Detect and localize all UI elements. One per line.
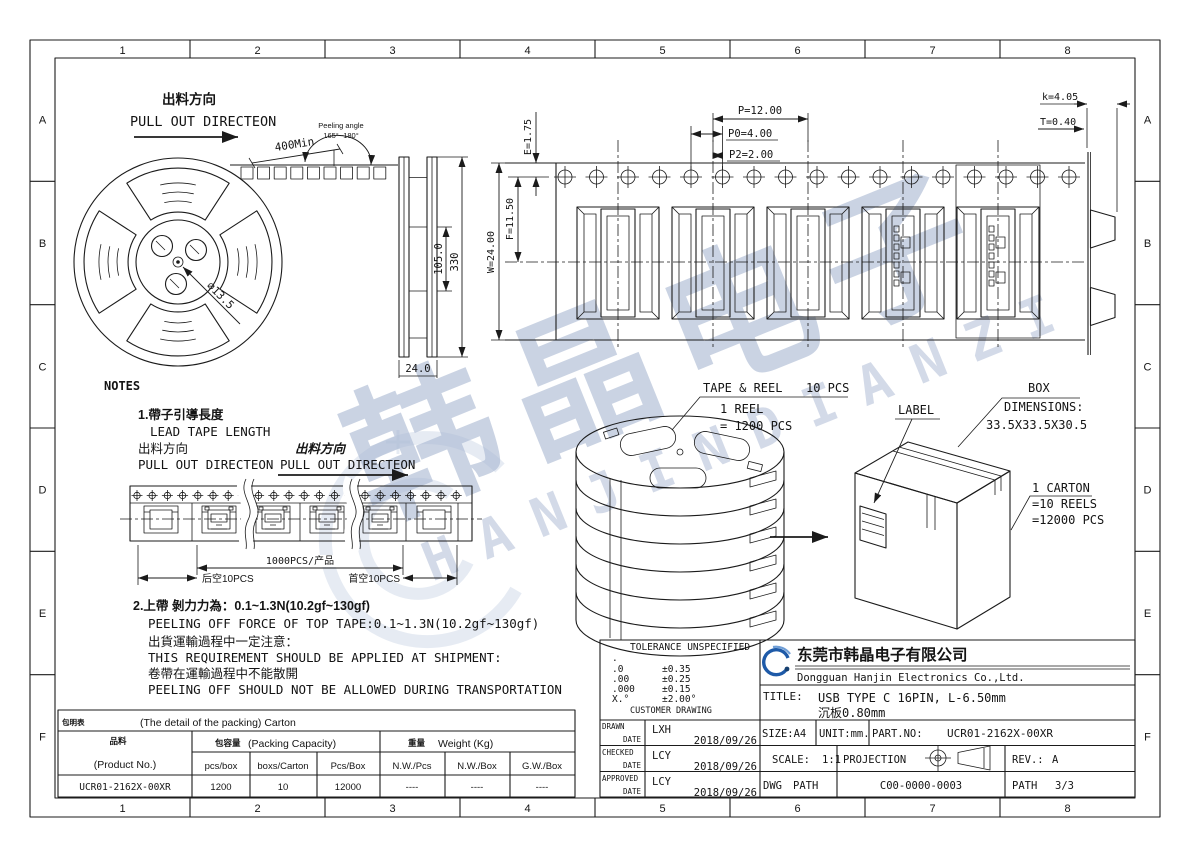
- sheet-value: 3/3: [1055, 780, 1074, 792]
- grid-label: D: [39, 485, 47, 497]
- tape-pocket-square: [374, 167, 386, 179]
- grid-label: 2: [254, 803, 260, 815]
- tape-pocket-square: [357, 167, 369, 179]
- sprocket-hole: [177, 490, 188, 501]
- hub-hole-dia: ∅13.5: [204, 279, 237, 312]
- reel-side-view: 105.0 330 24.0: [399, 157, 468, 378]
- drawn-by: LXH: [652, 724, 671, 736]
- col-nw-box: N.W./Box: [457, 761, 497, 772]
- projection-symbol-icon: [925, 745, 990, 771]
- note1-dir2-en: PULL OUT DIRECTEON: [280, 457, 415, 472]
- dim-P0: P0=4.00: [728, 128, 772, 140]
- dwg-path-label: PATH: [793, 780, 818, 792]
- tape-pocket-square: [307, 167, 319, 179]
- grid-label: 5: [659, 45, 665, 57]
- dwg-number: C00-0000-0003: [880, 780, 962, 792]
- strip-total: 1000PCS/产品: [266, 554, 334, 567]
- strip-connector: [202, 506, 236, 533]
- size-field: SIZE:A4: [762, 728, 806, 740]
- row-part-no: UCR01-2162X-00XR: [79, 782, 171, 793]
- tol-dot: .: [612, 653, 618, 664]
- part-no-value: UCR01-2162X-00XR: [947, 727, 1053, 740]
- title-label: TITLE:: [763, 690, 803, 703]
- sprocket-hole: [901, 166, 923, 188]
- title-line2: 沉板0.80mm: [818, 706, 885, 720]
- sprocket-hole: [420, 490, 431, 501]
- reel-stack: TAPE & REEL 10 PCS 1 REEL = 1200 PCS: [576, 381, 849, 656]
- sprocket-hole: [806, 166, 828, 188]
- sprocket-hole: [743, 166, 765, 188]
- approved-label: APPROVED: [602, 774, 639, 783]
- sprocket-hole: [775, 166, 797, 188]
- tape-pocket-square: [291, 167, 303, 179]
- reel-inner-width: 105.0: [433, 243, 445, 275]
- note1-dir-en: PULL OUT DIRECTEON: [138, 457, 273, 472]
- note1-cn: 1.帶子引導長度: [138, 407, 224, 422]
- grid-label: 4: [524, 45, 530, 57]
- sprocket-hole: [838, 166, 860, 188]
- box-label: BOX: [1028, 381, 1050, 395]
- sprocket-hole: [208, 490, 219, 501]
- reel-tape-width: 24.0: [405, 363, 430, 375]
- tolerance-footer: CUSTOMER DRAWING: [630, 706, 712, 716]
- sprocket-hole: [680, 166, 702, 188]
- box-dims-value: 33.5X33.5X30.5: [986, 418, 1087, 432]
- sprocket-hole: [147, 490, 158, 501]
- sprocket-hole: [314, 490, 325, 501]
- reel-count: 1 REEL: [720, 402, 763, 416]
- sprocket-hole: [223, 490, 234, 501]
- grid-label: F: [1144, 731, 1151, 743]
- title-block: TOLERANCE UNSPECIFIED . .0 ±0.35 .00 ±0.…: [600, 640, 1135, 799]
- tol-3-r: ±2.00°: [662, 694, 696, 705]
- checked-by: LCY: [652, 750, 672, 762]
- sprocket-hole: [284, 490, 295, 501]
- drawn-date-label: DATE: [623, 735, 642, 744]
- dim-F: F=11.50: [505, 198, 516, 240]
- dim-k: k=4.05: [1042, 92, 1078, 103]
- tape-pocket-square: [341, 167, 353, 179]
- strip-connector: [144, 506, 178, 533]
- note2b-cn: 出貨運輸過程中一定注意：: [148, 634, 298, 649]
- grid-label: E: [1144, 608, 1151, 620]
- tolerance-title: TOLERANCE UNSPECIFIED: [630, 642, 750, 653]
- packing-table: 包明表 (The detail of the packing) Carton 品…: [58, 710, 575, 797]
- drawing-sheet: 韩晶电子 HANJINDIANZI: [0, 0, 1200, 858]
- approved-date-label: DATE: [623, 787, 642, 796]
- product-cn: 品料: [109, 736, 127, 746]
- row-boxs-carton: 10: [278, 782, 289, 793]
- note2-cn: 2.上帶 剝力力為：0.1~1.3N(10.2gf~130gf): [133, 598, 370, 613]
- sprocket-hole: [617, 166, 639, 188]
- checked-label: CHECKED: [602, 748, 634, 757]
- row-gw-box: ----: [536, 782, 549, 793]
- grid-label: A: [39, 115, 47, 127]
- sprocket-hole: [649, 166, 671, 188]
- tape-pocket-square: [241, 167, 253, 179]
- note2c-en: PEELING OFF SHOULD NOT BE ALLOWED DURING…: [148, 682, 562, 697]
- note2b-en: THIS REQUIREMENT SHOULD BE APPLIED AT SH…: [148, 650, 502, 665]
- dwg-label: DWG: [763, 780, 782, 792]
- tape-reel-label: TAPE & REEL: [703, 381, 782, 395]
- grid-label: 1: [119, 45, 125, 57]
- unit-field: UNIT:mm.: [819, 728, 870, 740]
- dim-P2: P2=2.00: [729, 149, 773, 161]
- row-pcs-carton: 12000: [335, 782, 361, 793]
- grid-label: 7: [929, 803, 935, 815]
- grid-label: B: [39, 238, 46, 250]
- tape-reel-qty: 10 PCS: [806, 381, 849, 395]
- grid-label: D: [1144, 485, 1152, 497]
- approved-by: LCY: [652, 776, 672, 788]
- grid-label: 7: [929, 45, 935, 57]
- weight-en: Weight (Kg): [438, 738, 493, 750]
- grid-label: 4: [524, 803, 530, 815]
- sprocket-hole: [192, 490, 203, 501]
- grid-label: 2: [254, 45, 260, 57]
- carrier-tape-view: E=1.75 F=11.50 W=24.00 P=12.00 P0=4.00 P…: [486, 105, 1085, 348]
- sprocket-hole: [299, 490, 310, 501]
- grid-label: A: [1144, 115, 1152, 127]
- rev-value: A: [1052, 754, 1059, 766]
- col-gw-box: G.W./Box: [522, 761, 562, 772]
- reel-front-view: 出料方向 PULL OUT DIRECTEON ∅13.5 400Min Pee…: [74, 91, 398, 366]
- dim-T: T=0.40: [1040, 117, 1076, 128]
- leader-length: 400Min: [274, 135, 315, 154]
- notes-section: NOTES 1.帶子引導長度 LEAD TAPE LENGTH 出料方向 PUL…: [104, 379, 562, 697]
- sprocket-hole: [586, 166, 608, 188]
- tape-pocket-square: [324, 167, 336, 179]
- sheet-label: PATH: [1012, 780, 1037, 792]
- dim-P: P=12.00: [738, 105, 782, 117]
- capacity-cn: 包容量: [215, 738, 241, 748]
- checked-date-label: DATE: [623, 761, 642, 770]
- sprocket-hole: [1058, 166, 1080, 188]
- approved-date: 2018/09/26: [694, 787, 757, 799]
- col-boxs-carton: boxs/Carton: [257, 761, 308, 772]
- row-nw-box: ----: [471, 782, 484, 793]
- part-no-label: PART.NO:: [872, 728, 923, 740]
- box-dims-label: DIMENSIONS:: [1004, 400, 1083, 414]
- label-text: LABEL: [898, 403, 934, 417]
- sprocket-hole: [162, 490, 173, 501]
- rev-label: REV.:: [1012, 754, 1044, 766]
- scale-value: 1:1: [822, 754, 841, 766]
- dim-E: E=1.75: [523, 119, 534, 155]
- sprocket-hole: [132, 490, 143, 501]
- weight-cn: 重量: [408, 738, 426, 748]
- peeling-angle-label: Peeling angle: [318, 121, 363, 130]
- capacity-en: (Packing Capacity): [248, 738, 336, 750]
- sprocket-hole: [712, 166, 734, 188]
- company-name-en: Dongguan Hanjin Electronics Co.,Ltd.: [797, 672, 1025, 684]
- sprocket-hole: [964, 166, 986, 188]
- sprocket-hole: [405, 490, 416, 501]
- carton-reels: =10 REELS: [1032, 497, 1097, 511]
- strip-connector: [256, 506, 290, 533]
- note2c-cn: 卷帶在運輸過程中不能散開: [148, 666, 298, 681]
- pull-out-en: PULL OUT DIRECTEON: [130, 114, 276, 130]
- drawn-date: 2018/09/26: [694, 735, 757, 747]
- note2-en: PEELING OFF FORCE OF TOP TAPE:0.1~1.3N(1…: [148, 616, 539, 631]
- tape-end-view: k=4.05 T=0.40: [1038, 92, 1130, 355]
- note1-dir-cn: 出料方向: [138, 441, 188, 456]
- grid-label: E: [39, 608, 46, 620]
- company-name-cn: 东莞市韩晶电子有限公司: [797, 645, 968, 664]
- sprocket-hole: [268, 490, 279, 501]
- note1-en: LEAD TAPE LENGTH: [150, 424, 270, 439]
- notes-heading: NOTES: [104, 379, 140, 393]
- drawn-label: DRAWN: [602, 722, 625, 731]
- table-tag: 包明表: [61, 717, 85, 727]
- carton-qty: =12000 PCS: [1032, 513, 1104, 527]
- grid-label: 3: [389, 45, 395, 57]
- carton-count: 1 CARTON: [1032, 481, 1090, 495]
- grid-label: F: [39, 731, 46, 743]
- strip-connector: [417, 506, 451, 533]
- row-nw-pcs: ----: [406, 782, 419, 793]
- table-heading: (The detail of the packing) Carton: [140, 717, 296, 729]
- grid-label: 6: [794, 45, 800, 57]
- col-nw-pcs: N.W./Pcs: [392, 761, 431, 772]
- strip-tail: 后空10PCS: [202, 572, 254, 585]
- col-pcs-box: pcs/box: [205, 761, 238, 772]
- tape-pocket-square: [274, 167, 286, 179]
- grid-label: B: [1144, 238, 1151, 250]
- row-pcs-box: 1200: [210, 782, 231, 793]
- checked-date: 2018/09/26: [694, 761, 757, 773]
- strip-head: 首空10PCS: [348, 572, 400, 585]
- grid-label: C: [39, 361, 47, 373]
- grid-label: 1: [119, 803, 125, 815]
- grid-label: 5: [659, 803, 665, 815]
- sprocket-hole: [1027, 166, 1049, 188]
- scale-label: SCALE:: [772, 754, 810, 766]
- sprocket-hole: [554, 166, 576, 188]
- grid-label: C: [1144, 361, 1152, 373]
- pull-out-cn: 出料方向: [162, 91, 216, 107]
- sprocket-hole: [869, 166, 891, 188]
- note1-dir2-cn: 出料方向: [295, 442, 347, 456]
- reel-outer-dia: 330: [449, 253, 461, 272]
- grid-label: 8: [1064, 803, 1070, 815]
- projection-label: PROJECTION: [843, 754, 906, 766]
- reel-qty: = 1200 PCS: [720, 419, 792, 433]
- grid-label: 6: [794, 803, 800, 815]
- dim-W: W=24.00: [486, 231, 497, 273]
- grid-label: 8: [1064, 45, 1070, 57]
- tape-pocket-square: [258, 167, 270, 179]
- sprocket-hole: [451, 490, 462, 501]
- tol-3-l: X.°: [612, 694, 629, 705]
- col-pcs-carton: Pcs/Box: [331, 761, 366, 772]
- product-en: (Product No.): [94, 759, 156, 771]
- company-logo-icon: [764, 647, 790, 675]
- title-line1: USB TYPE C 16PIN, L-6.50mm: [818, 691, 1006, 705]
- grid-label: 3: [389, 803, 395, 815]
- sprocket-hole: [932, 166, 954, 188]
- carton-box: LABEL BOX DIMENSIONS: 33.5X33.5X30.5 1 C…: [855, 381, 1104, 629]
